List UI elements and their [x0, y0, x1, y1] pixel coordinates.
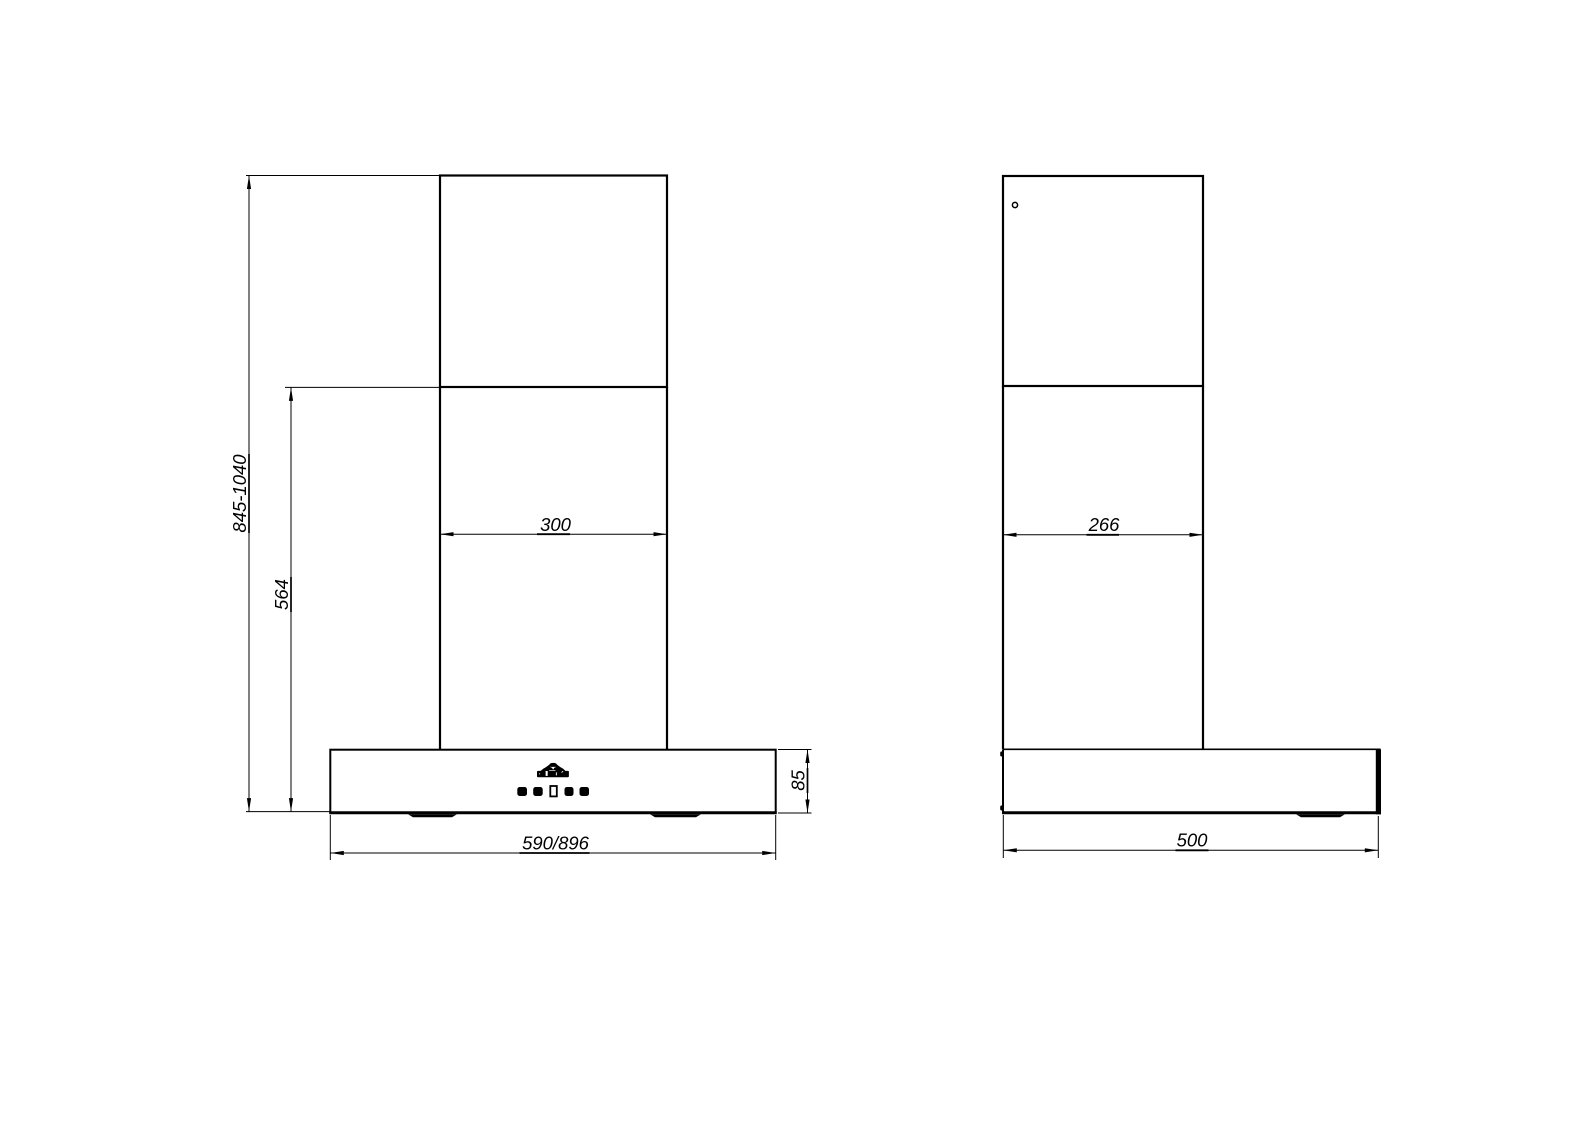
svg-text:564: 564 — [271, 579, 292, 610]
svg-text:85: 85 — [788, 770, 809, 791]
svg-text:266: 266 — [1088, 514, 1121, 535]
svg-text:500: 500 — [1177, 830, 1209, 851]
svg-text:300: 300 — [540, 514, 572, 535]
svg-text:590/896: 590/896 — [522, 832, 590, 853]
svg-text:845-1040: 845-1040 — [229, 454, 250, 533]
